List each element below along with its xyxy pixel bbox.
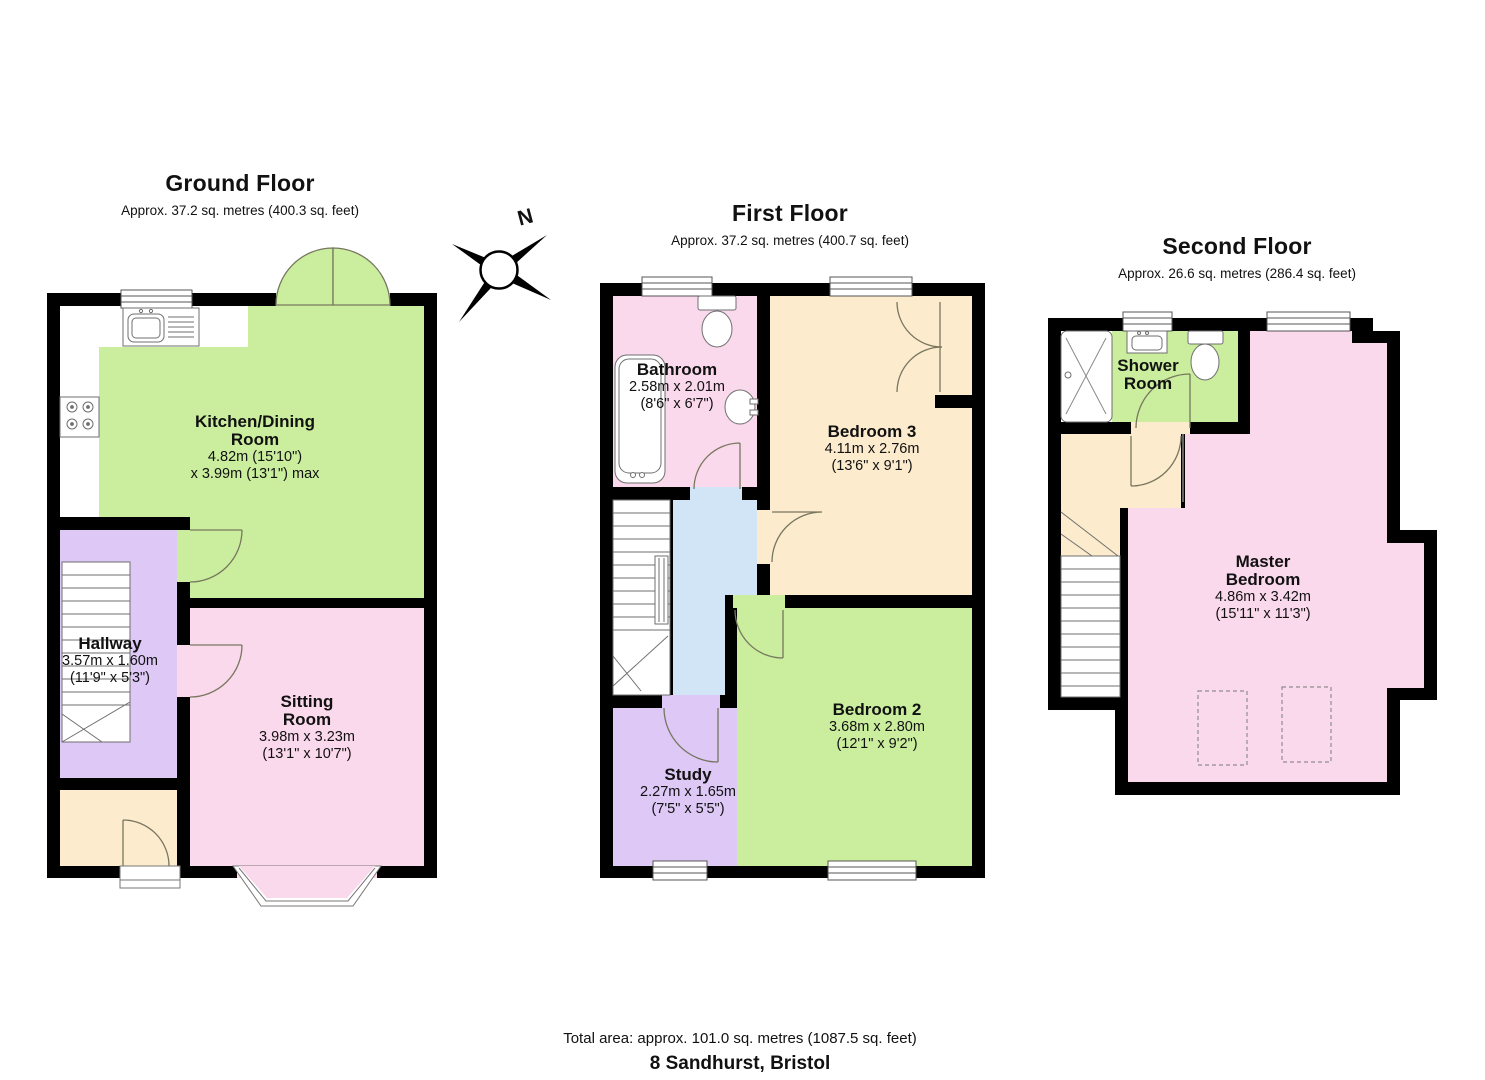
hob-icon [60,397,99,437]
label-bathroom: Bathroom 2.58m x 2.01m (8'6" x 6'7") [597,361,757,412]
room-dims: 3.98m x 3.23m (13'1" x 10'7") [207,729,407,762]
window-icon [121,290,192,308]
floorplan-sheet: Ground Floor Approx. 37.2 sq. metres (40… [0,0,1485,1080]
bay-window-icon [233,866,381,906]
room-dims: 4.82m (15'10") x 3.99m (13'1") max [155,449,355,482]
window-icon [1123,312,1350,331]
label-bedroom3: Bedroom 3 4.11m x 2.76m (13'6" x 9'1") [772,423,972,474]
wardrobe-doors-icon [897,302,942,392]
sink-icon [1127,331,1167,353]
room-name: Kitchen/Dining Room [155,413,355,449]
stairs-first-icon [613,500,670,695]
room-name: Master Bedroom [1163,553,1363,589]
total-area-text: Total area: approx. 101.0 sq. metres (10… [440,1030,1040,1047]
room-name: Bathroom [597,361,757,379]
label-kitchen: Kitchen/Dining Room 4.82m (15'10") x 3.9… [155,413,355,482]
room-dims: 2.27m x 1.65m (7'5" x 5'5") [598,784,778,817]
label-master-bedroom: Master Bedroom 4.86m x 3.42m (15'11" x 1… [1163,553,1363,622]
room-name: Sitting Room [207,693,407,729]
french-doors-icon [276,248,390,305]
stairs-second-icon [1061,512,1120,697]
room-dims: 4.11m x 2.76m (13'6" x 9'1") [772,441,972,474]
room-dims: 2.58m x 2.01m (8'6" x 6'7") [597,379,757,412]
room-dims: 3.57m x 1.60m (11'9" x 5'3") [30,653,190,686]
label-hallway: Hallway 3.57m x 1.60m (11'9" x 5'3") [30,635,190,686]
room-name: Bedroom 2 [777,701,977,719]
compass-icon [452,235,551,322]
room-name: Hallway [30,635,190,653]
address-text: 8 Sandhurst, Bristol [440,1053,1040,1075]
room-name: Bedroom 3 [772,423,972,441]
room-name: Study [598,766,778,784]
room-dims: 4.86m x 3.42m (15'11" x 11'3") [1163,589,1363,622]
label-bedroom2: Bedroom 2 3.68m x 2.80m (12'1" x 9'2") [777,701,977,752]
kitchen-sink-icon [123,308,199,346]
door-arc [1131,374,1190,502]
toilet-icon [698,296,736,347]
room-name: Shower Room [1078,357,1218,393]
label-shower-room: Shower Room [1078,357,1218,393]
skylight-icon [1198,687,1331,765]
room-dims: 3.68m x 2.80m (12'1" x 9'2") [777,719,977,752]
label-sitting: Sitting Room 3.98m x 3.23m (13'1" x 10'7… [207,693,407,762]
fixtures-overlay [0,0,1485,1080]
threshold-icon [120,866,180,888]
label-study: Study 2.27m x 1.65m (7'5" x 5'5") [598,766,778,817]
